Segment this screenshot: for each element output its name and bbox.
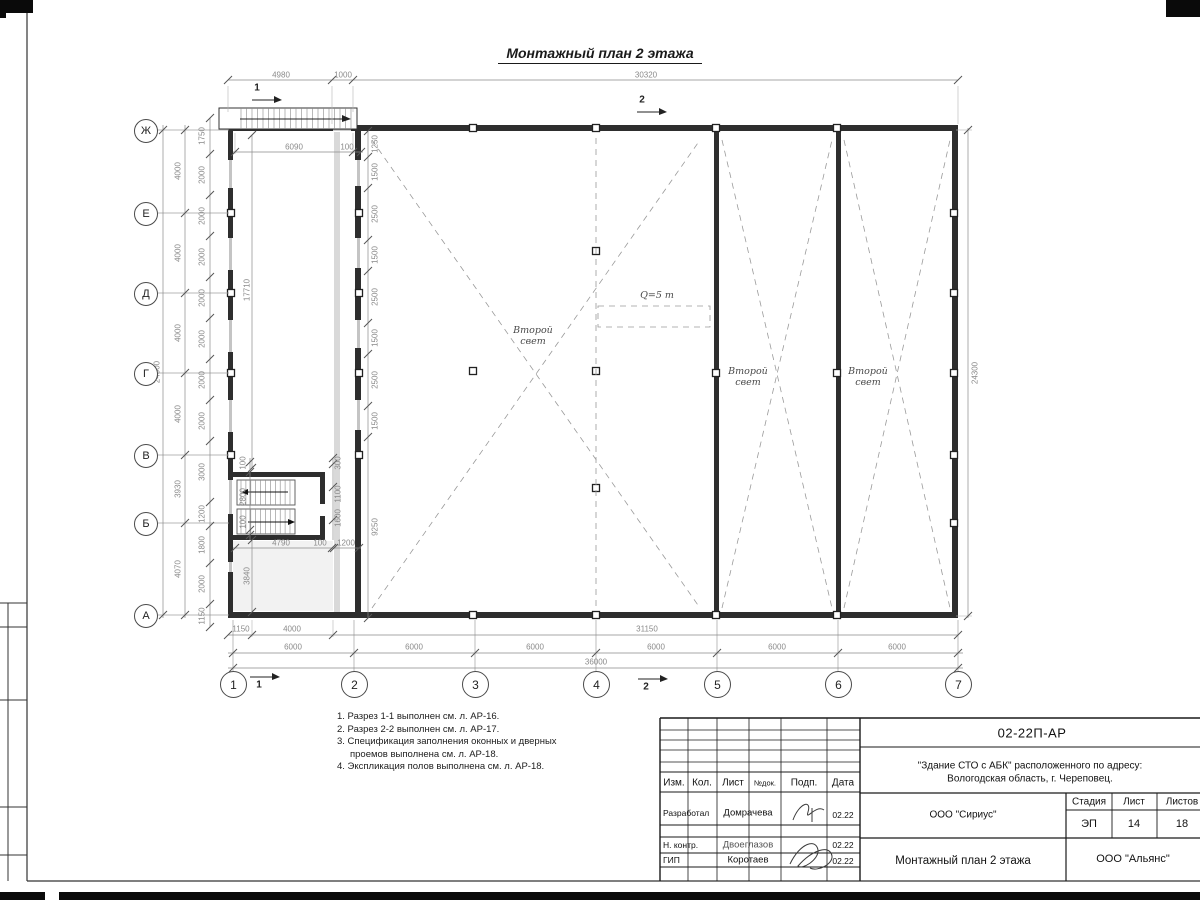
object-address-line1: "Здание СТО с АБК" расположенного по адр…: [918, 761, 1143, 772]
drawing-sheet: Монтажный план 2 этажа 4980 1000 30320 6…: [0, 0, 1200, 900]
external-stair: [219, 108, 357, 129]
page-title: Монтажный план 2 этажа: [455, 45, 745, 61]
dim-label: 6000: [888, 643, 906, 652]
second-light-label: Второй свет: [840, 366, 896, 388]
dim-label: 1200: [198, 505, 207, 523]
sig-role: Н. контр.: [663, 840, 698, 850]
sig-role: Разработал: [663, 808, 709, 818]
tb-col-ndok: №док.: [754, 779, 776, 788]
sheets-label: Листов: [1166, 797, 1199, 808]
dim-label: 1500: [371, 329, 380, 347]
dim-label: 2800: [239, 488, 248, 506]
contractor-org: ООО "Альянс": [1096, 853, 1170, 865]
dim-label: 2500: [371, 205, 380, 223]
dim-label: 300: [334, 456, 343, 469]
doc-code: 02-22П-АР: [998, 726, 1067, 741]
tb-col-list: Лист: [722, 778, 744, 789]
dim-label: 4790: [272, 539, 290, 548]
axis-bubble-row: Е: [134, 202, 158, 226]
axis-bubble-col: 1: [220, 671, 247, 698]
sig-name: Двоеглазов: [723, 840, 774, 851]
note-item: 4. Экспликация полов выполнена см. л. АР…: [337, 761, 595, 774]
axis-bubble-col: 4: [583, 671, 610, 698]
dim-label: 2000: [198, 575, 207, 593]
dim-label: 4000: [174, 324, 183, 342]
designer-org: ООО "Сириус": [929, 810, 996, 821]
dim-label: 2000: [198, 248, 207, 266]
tb-col-podp: Подп.: [791, 778, 818, 789]
dim-label: 4000: [174, 162, 183, 180]
axis-bubble-row: Ж: [134, 119, 158, 143]
second-light-label: Второй свет: [505, 325, 561, 347]
dim-label: 2000: [198, 412, 207, 430]
dim-label: 36000: [585, 658, 607, 667]
note-item: 1. Разрез 1-1 выполнен см. л. АР-16.: [337, 711, 595, 724]
stage-value: ЭП: [1081, 818, 1097, 830]
dim-label: 1750: [198, 127, 207, 145]
sig-date: 02.22: [832, 810, 853, 820]
axis-bubble-col: 5: [704, 671, 731, 698]
dim-label: 24300: [971, 362, 980, 384]
dim-label: 100: [340, 143, 353, 152]
dim-label: 2500: [371, 288, 380, 306]
dim-label: 4000: [174, 405, 183, 423]
dim-label: 6090: [285, 143, 303, 152]
section-mark-2: 2: [643, 682, 649, 693]
sheet-number: 14: [1128, 818, 1140, 830]
section-mark-2: 2: [639, 95, 645, 106]
dim-label: 100: [239, 515, 248, 528]
dim-label: 2000: [198, 330, 207, 348]
sig-date: 02.22: [832, 856, 853, 866]
stage-label: Стадия: [1072, 797, 1106, 808]
note-item: 3. Спецификация заполнения оконных и две…: [337, 736, 595, 761]
dim-label: 1600: [334, 509, 343, 527]
dim-label: 1100: [334, 485, 343, 502]
sheets-total: 18: [1176, 818, 1188, 830]
sig-role: ГИП: [663, 855, 680, 865]
axis-bubble-row: В: [134, 444, 158, 468]
dim-label: 100: [239, 456, 248, 469]
dim-label: 1500: [371, 412, 380, 430]
dim-label: 4000: [174, 244, 183, 262]
dim-label: 1800: [198, 536, 207, 554]
axis-bubble-row: А: [134, 604, 158, 628]
tb-col-kol: Кол.: [692, 778, 712, 789]
axis-bubble-col: 6: [825, 671, 852, 698]
dim-label: 6000: [526, 643, 544, 652]
sheet-label: Лист: [1123, 797, 1145, 808]
tb-col-izm: Изм.: [663, 778, 684, 789]
sig-date: 02.22: [832, 840, 853, 850]
second-light-label: Второй свет: [720, 366, 776, 388]
axis-bubble-row: Г: [134, 362, 158, 386]
section-mark-1: 1: [254, 83, 260, 94]
dim-label: 3840: [243, 567, 252, 585]
tb-col-data: Дата: [832, 778, 854, 789]
dim-label: 9250: [371, 518, 380, 536]
dim-label: 2000: [198, 207, 207, 225]
dim-label: 17710: [243, 279, 252, 301]
notes-list: 1. Разрез 1-1 выполнен см. л. АР-16. 2. …: [337, 711, 595, 774]
axis-bubble-row: Д: [134, 282, 158, 306]
note-item: 2. Разрез 2-2 выполнен см. л. АР-17.: [337, 724, 595, 737]
dim-label: 1150: [198, 607, 207, 624]
dim-label: 4000: [283, 625, 301, 634]
axis-bubble-col: 2: [341, 671, 368, 698]
dim-label: 3000: [198, 463, 207, 481]
axis-bubble-row: Б: [134, 512, 158, 536]
dim-label: 1000: [334, 71, 352, 80]
dim-label: 2000: [198, 166, 207, 184]
dim-label: 6000: [647, 643, 665, 652]
crane-capacity-label: Q=5 т: [627, 290, 687, 301]
axis-bubble-col: 7: [945, 671, 972, 698]
dim-label: 1150: [232, 625, 249, 634]
dim-label: 1200: [337, 539, 355, 548]
section-mark-1: 1: [256, 680, 262, 691]
dim-label: 100: [313, 539, 326, 548]
dim-label: 2000: [198, 289, 207, 307]
sheet-title: Монтажный план 2 этажа: [895, 855, 1031, 867]
dim-label: 3930: [174, 480, 183, 498]
dim-label: 6000: [405, 643, 423, 652]
dim-label: 6000: [284, 643, 302, 652]
dim-label: 1500: [371, 163, 380, 181]
dim-label: 2500: [371, 371, 380, 389]
dim-label: 6000: [768, 643, 786, 652]
axis-bubble-col: 3: [462, 671, 489, 698]
dim-label: 1250: [371, 135, 380, 153]
sig-name: Домрачева: [723, 808, 772, 819]
object-address-line2: Вологодская область, г. Череповец.: [947, 774, 1113, 785]
dim-label: 1500: [371, 246, 380, 264]
dim-label: 30320: [635, 71, 657, 80]
dim-label: 31150: [636, 625, 658, 634]
sig-name: Коротаев: [727, 855, 768, 866]
dim-label: 4070: [174, 560, 183, 578]
dim-label: 2000: [198, 371, 207, 389]
dim-label: 4980: [272, 71, 290, 80]
